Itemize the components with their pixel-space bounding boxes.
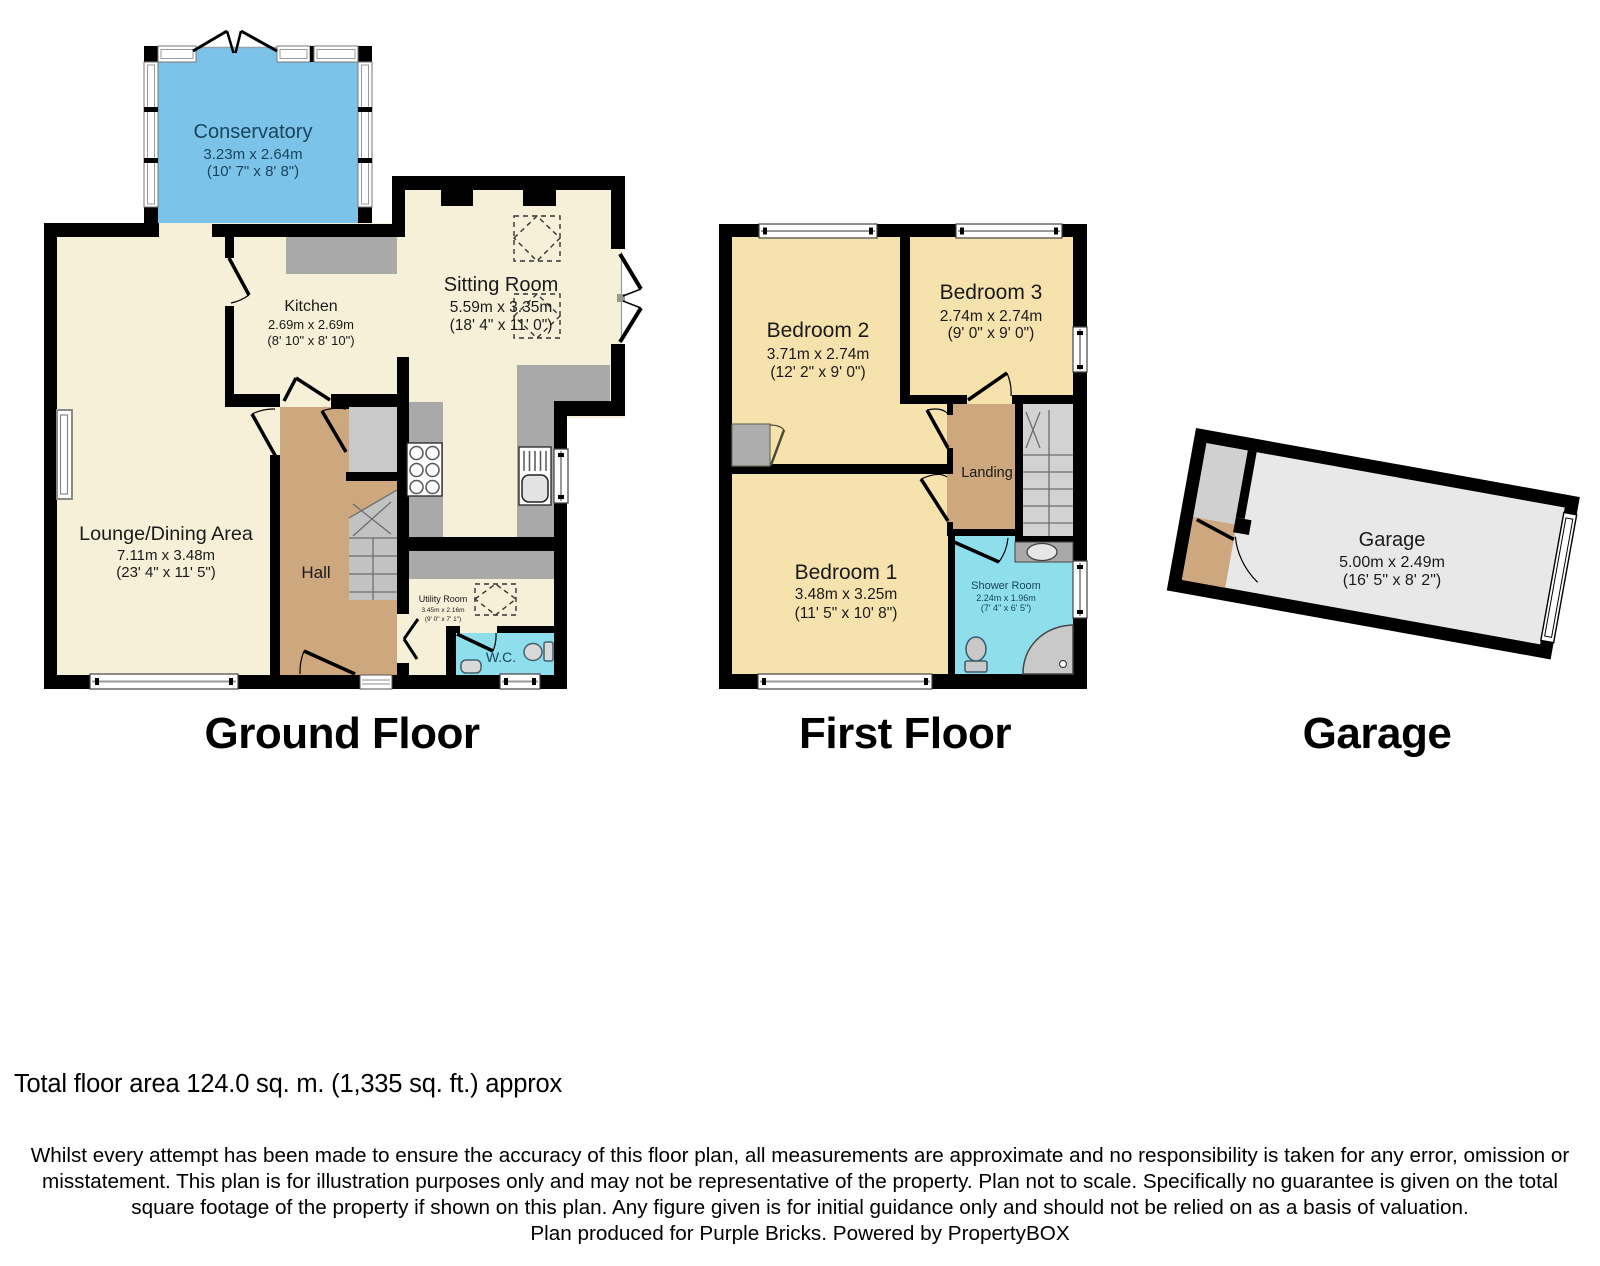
svg-text:Utility Room: Utility Room xyxy=(419,594,468,604)
svg-text:Whilst every attempt has been: Whilst every attempt has been made to en… xyxy=(31,1144,1570,1167)
svg-text:First Floor: First Floor xyxy=(799,709,1011,758)
svg-text:Hall: Hall xyxy=(301,563,330,582)
svg-text:Plan produced for Purple Brick: Plan produced for Purple Bricks. Powered… xyxy=(530,1222,1069,1245)
svg-text:Bedroom 1: Bedroom 1 xyxy=(795,561,898,584)
svg-text:(9' 0" x 7' 1"): (9' 0" x 7' 1") xyxy=(425,616,461,623)
svg-text:(18' 4" x 11' 0"): (18' 4" x 11' 0") xyxy=(450,317,553,334)
svg-text:square footage of the property: square footage of the property if shown … xyxy=(131,1196,1469,1219)
svg-text:(23' 4" x 11' 5"): (23' 4" x 11' 5") xyxy=(116,564,215,581)
svg-text:Garage: Garage xyxy=(1303,709,1452,758)
svg-text:7.11m x 3.48m: 7.11m x 3.48m xyxy=(117,547,215,564)
svg-text:2.74m x 2.74m: 2.74m x 2.74m xyxy=(940,308,1043,325)
svg-text:(12' 2" x 9' 0"): (12' 2" x 9' 0") xyxy=(770,364,865,381)
svg-text:(10' 7" x 8' 8"): (10' 7" x 8' 8") xyxy=(207,163,299,180)
svg-text:Bedroom 3: Bedroom 3 xyxy=(940,281,1043,304)
svg-text:5.00m x 2.49m: 5.00m x 2.49m xyxy=(1339,554,1445,571)
svg-text:Bedroom 2: Bedroom 2 xyxy=(767,319,870,342)
svg-text:5.59m x 3.35m: 5.59m x 3.35m xyxy=(450,299,553,316)
svg-text:Lounge/Dining Area: Lounge/Dining Area xyxy=(79,523,253,545)
svg-text:Total floor area 124.0 sq. m.: Total floor area 124.0 sq. m. (1,335 sq.… xyxy=(14,1070,563,1098)
svg-text:(16' 5" x 8' 2"): (16' 5" x 8' 2") xyxy=(1343,572,1441,589)
svg-text:3.45m x 2.16m: 3.45m x 2.16m xyxy=(422,607,465,614)
svg-text:misstatement. This plan is for: misstatement. This plan is for illustrat… xyxy=(42,1170,1558,1193)
svg-text:Garage: Garage xyxy=(1359,529,1426,551)
svg-text:Kitchen: Kitchen xyxy=(284,298,337,315)
svg-text:2.24m x 1.96m: 2.24m x 1.96m xyxy=(976,593,1036,603)
svg-text:(11' 5" x 10' 8"): (11' 5" x 10' 8") xyxy=(795,605,898,622)
svg-text:3.23m x 2.64m: 3.23m x 2.64m xyxy=(203,146,302,163)
svg-text:Landing: Landing xyxy=(961,465,1013,481)
svg-text:Shower Room: Shower Room xyxy=(971,580,1041,592)
svg-text:(9' 0" x 9' 0"): (9' 0" x 9' 0") xyxy=(948,325,1035,342)
svg-text:Sitting Room: Sitting Room xyxy=(444,274,559,296)
svg-text:Conservatory: Conservatory xyxy=(194,121,313,143)
svg-text:3.48m x 3.25m: 3.48m x 3.25m xyxy=(795,586,898,603)
svg-text:2.69m x 2.69m: 2.69m x 2.69m xyxy=(268,317,354,332)
svg-text:Ground Floor: Ground Floor xyxy=(204,709,479,758)
svg-text:(7' 4" x 6' 5"): (7' 4" x 6' 5") xyxy=(981,603,1031,613)
svg-text:(8' 10" x 8' 10"): (8' 10" x 8' 10") xyxy=(267,333,354,348)
svg-text:W.C.: W.C. xyxy=(486,649,516,665)
svg-text:3.71m x 2.74m: 3.71m x 2.74m xyxy=(767,346,870,363)
